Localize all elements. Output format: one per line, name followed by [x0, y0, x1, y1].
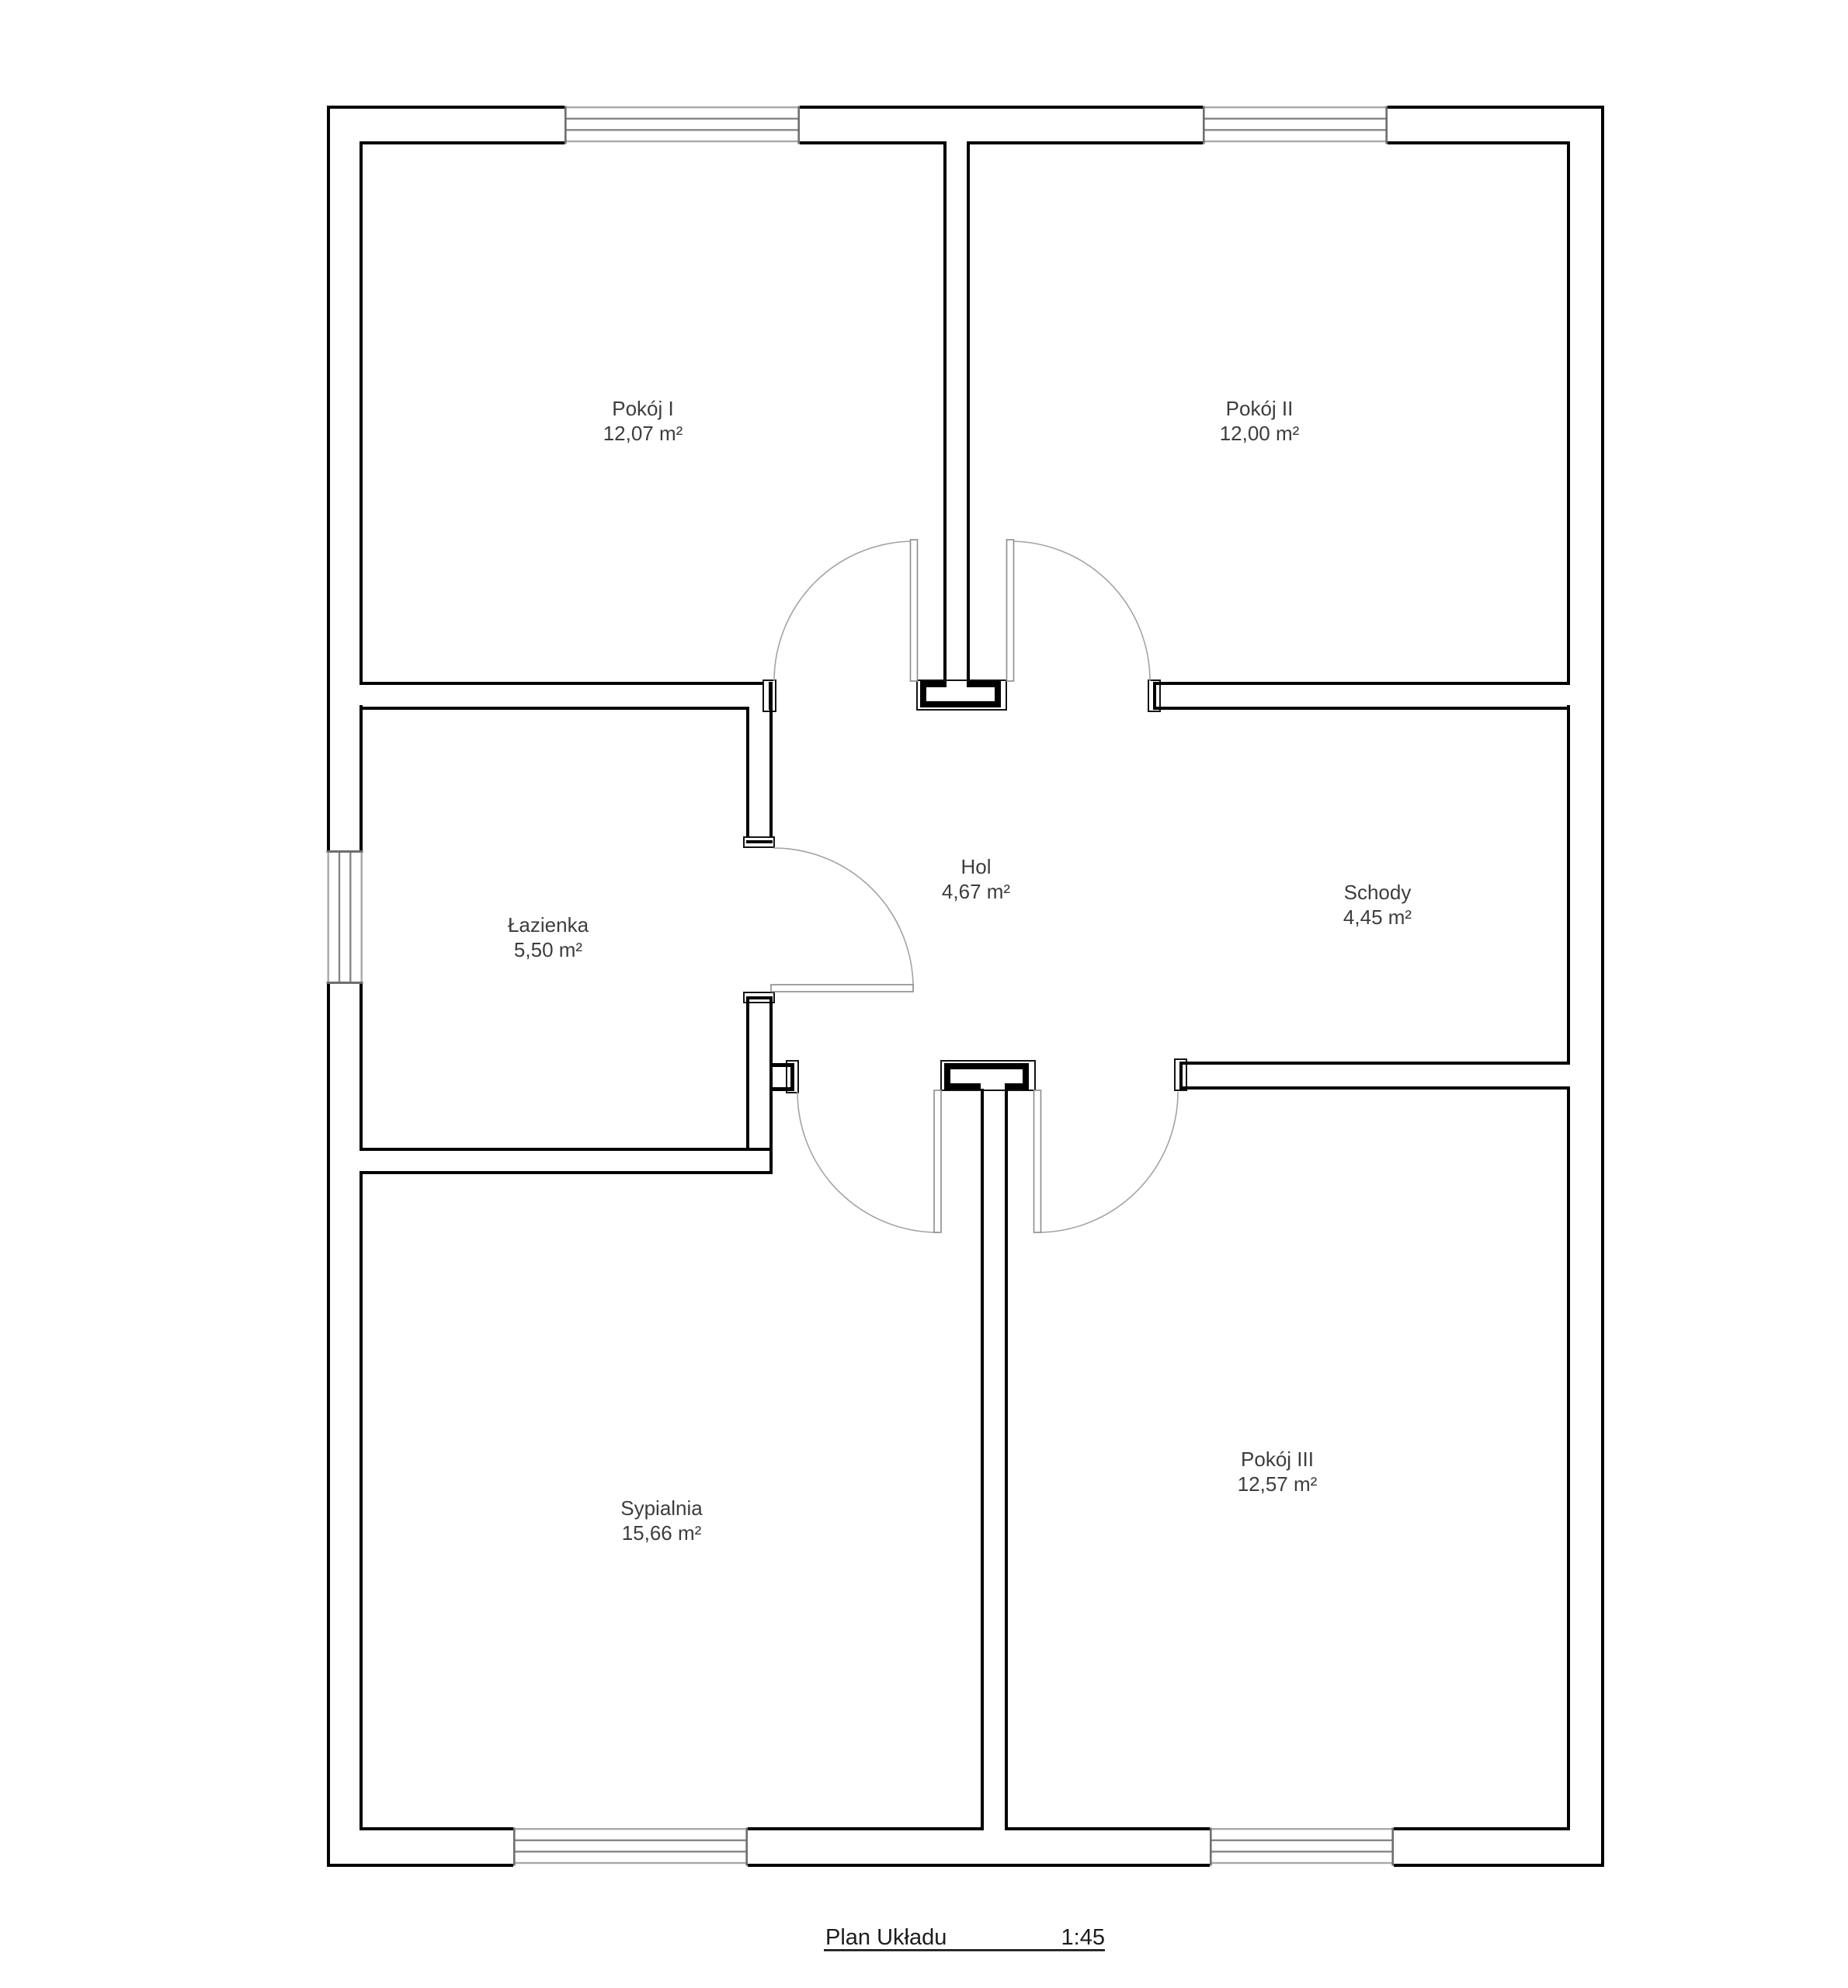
- svg-text:15,66 m²: 15,66 m²: [622, 1521, 702, 1545]
- svg-text:Sypialnia: Sypialnia: [620, 1496, 703, 1520]
- svg-text:12,57 m²: 12,57 m²: [1238, 1472, 1318, 1496]
- svg-text:Pokój I: Pokój I: [612, 397, 674, 420]
- svg-text:Hol: Hol: [960, 855, 991, 878]
- svg-text:12,00 m²: 12,00 m²: [1220, 422, 1300, 445]
- svg-text:12,07 m²: 12,07 m²: [603, 422, 683, 445]
- svg-text:Plan Układu: Plan Układu: [825, 1925, 947, 1950]
- svg-text:5,50 m²: 5,50 m²: [514, 938, 582, 961]
- svg-text:4,45 m²: 4,45 m²: [1343, 905, 1412, 929]
- svg-text:Pokój III: Pokój III: [1241, 1448, 1314, 1471]
- svg-text:Pokój II: Pokój II: [1226, 397, 1294, 420]
- svg-text:Łazienka: Łazienka: [508, 913, 589, 937]
- svg-text:1:45: 1:45: [1061, 1925, 1105, 1950]
- svg-text:4,67 m²: 4,67 m²: [942, 880, 1010, 903]
- svg-text:Schody: Schody: [1344, 881, 1412, 904]
